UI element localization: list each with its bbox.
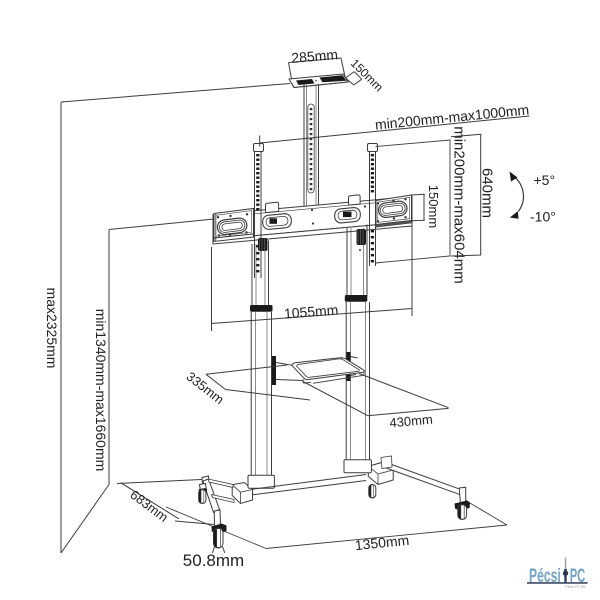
- svg-text:-10°: -10°: [530, 209, 556, 225]
- svg-text:min1340mm-max1660mm: min1340mm-max1660mm: [93, 309, 109, 472]
- svg-text:Pécsi PC Kft.: Pécsi PC Kft.: [565, 585, 586, 589]
- svg-text:PC: PC: [570, 566, 586, 587]
- svg-text:max2325mm: max2325mm: [44, 288, 60, 369]
- svg-text:+5°: +5°: [534, 172, 556, 188]
- svg-text:min200mm-max604mm: min200mm-max604mm: [451, 126, 468, 284]
- svg-text:Pécsi: Pécsi: [529, 567, 561, 587]
- svg-text:150mm: 150mm: [426, 185, 441, 228]
- svg-text:50.8mm: 50.8mm: [183, 551, 244, 570]
- svg-text:640mm: 640mm: [479, 168, 496, 218]
